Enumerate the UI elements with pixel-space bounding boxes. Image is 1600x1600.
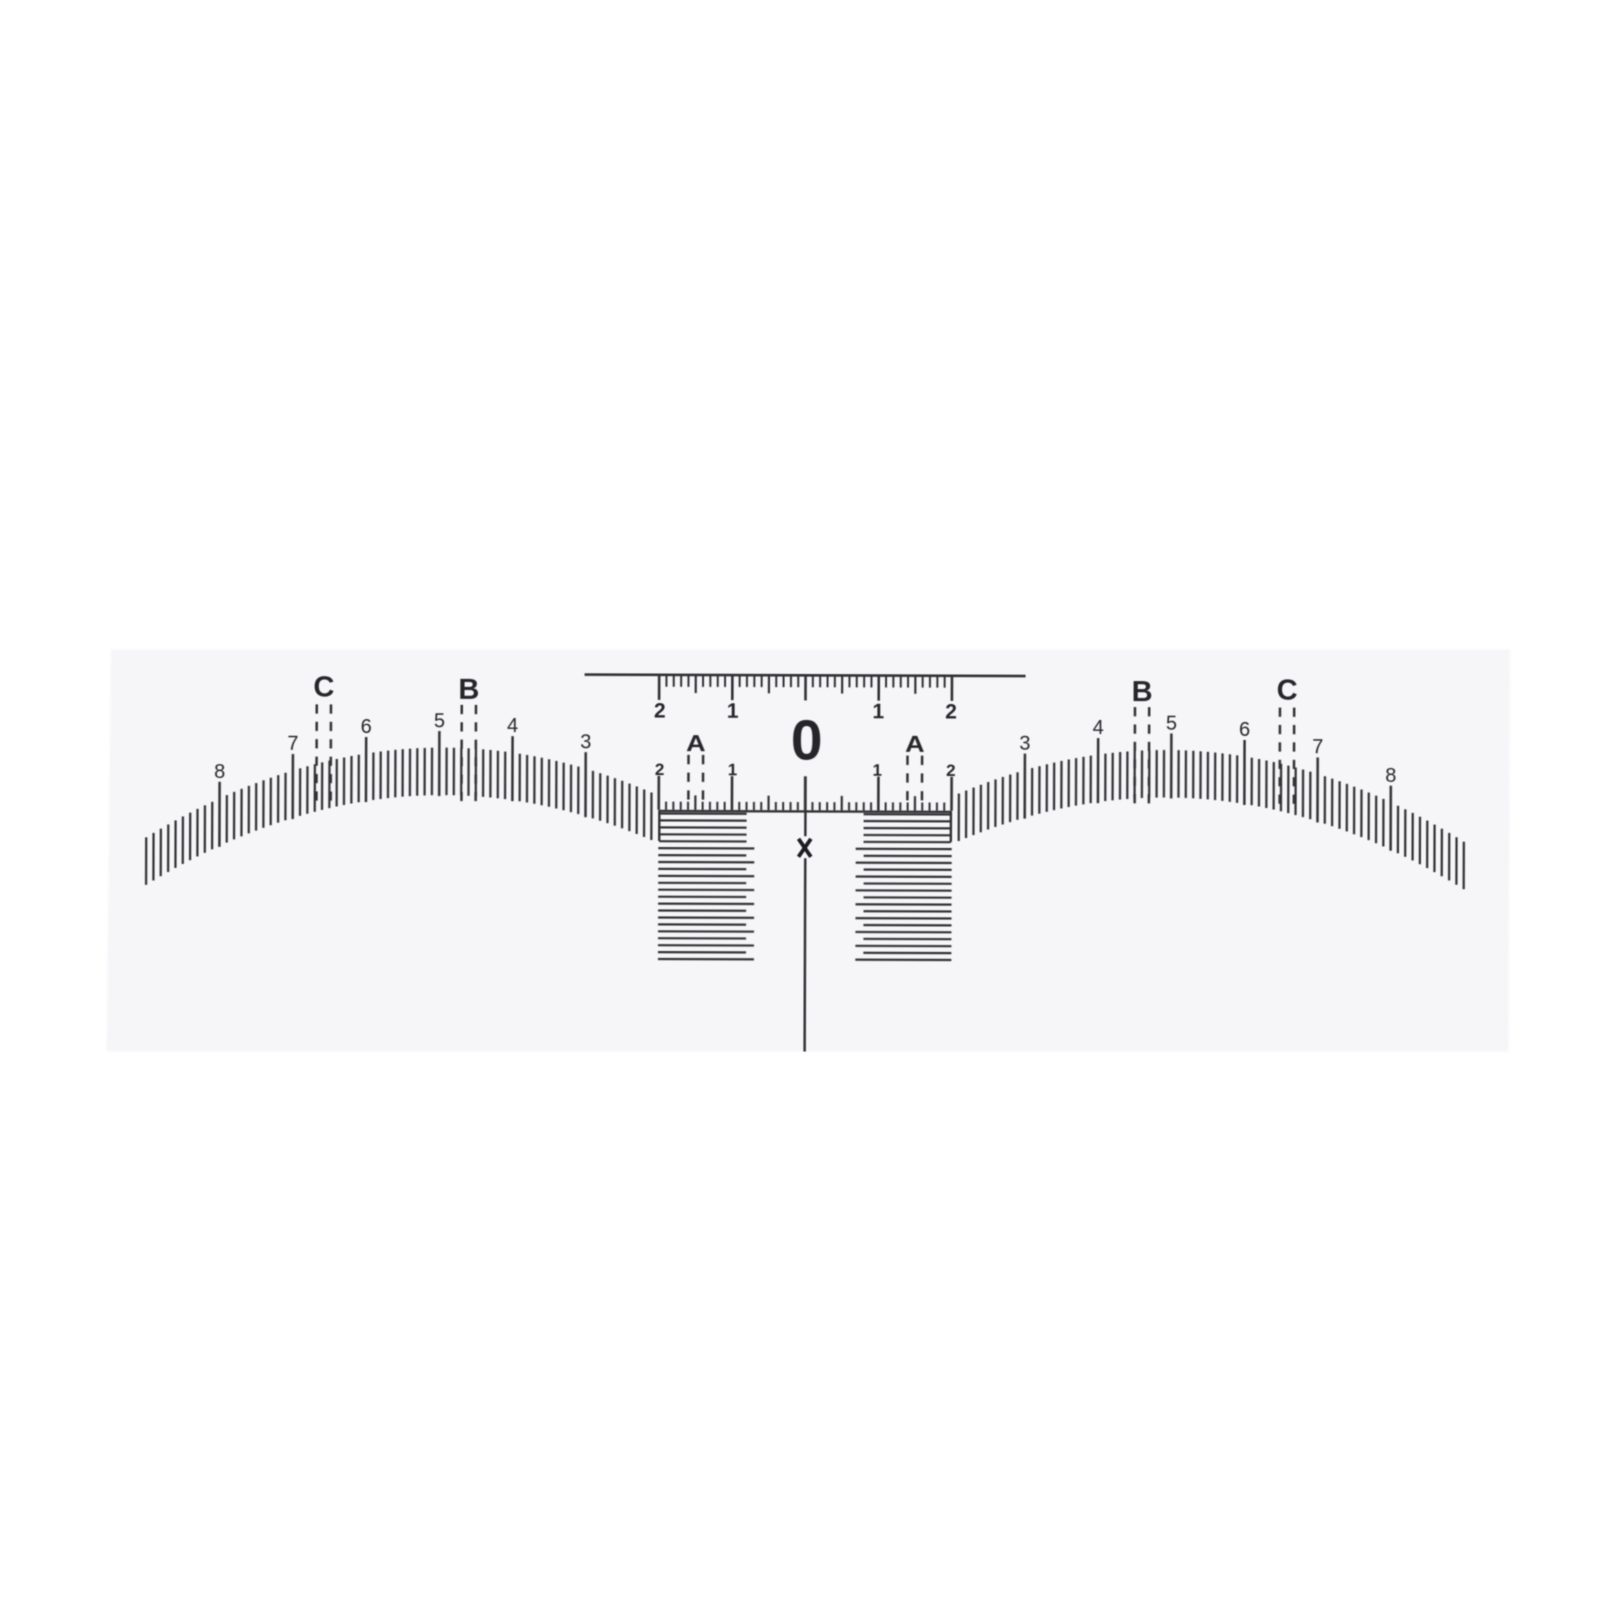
svg-text:1: 1 <box>872 700 884 723</box>
svg-text:5: 5 <box>1166 712 1177 734</box>
svg-text:6: 6 <box>1239 719 1250 741</box>
svg-text:3: 3 <box>1019 733 1030 755</box>
svg-text:6: 6 <box>361 716 372 738</box>
svg-text:4: 4 <box>1093 717 1104 739</box>
svg-text:0: 0 <box>791 708 823 772</box>
svg-text:1: 1 <box>727 700 739 723</box>
svg-text:5: 5 <box>434 710 445 732</box>
svg-text:C: C <box>313 671 334 703</box>
svg-text:2: 2 <box>945 701 957 724</box>
svg-text:C: C <box>1277 675 1298 707</box>
svg-text:2: 2 <box>655 760 665 779</box>
svg-text:2: 2 <box>654 700 666 723</box>
svg-text:8: 8 <box>214 761 225 783</box>
svg-text:7: 7 <box>1312 736 1323 758</box>
svg-text:7: 7 <box>287 733 298 755</box>
svg-text:1: 1 <box>728 760 738 779</box>
svg-text:3: 3 <box>580 731 591 753</box>
svg-text:4: 4 <box>507 715 518 737</box>
svg-text:A: A <box>686 730 706 756</box>
svg-text:2: 2 <box>946 761 956 780</box>
svg-text:A: A <box>905 731 925 757</box>
svg-text:B: B <box>458 674 479 706</box>
svg-text:8: 8 <box>1385 765 1396 787</box>
svg-text:B: B <box>1132 676 1153 708</box>
svg-text:1: 1 <box>872 761 882 780</box>
